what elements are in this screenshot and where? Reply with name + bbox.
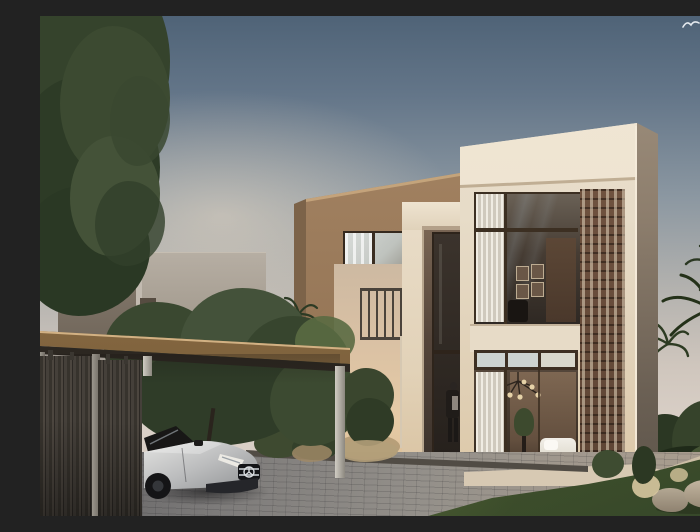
side-mirror bbox=[194, 440, 203, 446]
potted-plant bbox=[514, 408, 534, 436]
picture-frame bbox=[516, 284, 529, 299]
armchair-silhouette bbox=[508, 300, 528, 322]
slat-fence-panel bbox=[98, 360, 142, 516]
picture-frame bbox=[516, 266, 529, 281]
picture-frame bbox=[531, 282, 544, 297]
carport-post bbox=[335, 366, 345, 478]
transom-pane bbox=[541, 353, 575, 367]
person-bag bbox=[452, 396, 458, 410]
bed-pillow bbox=[544, 440, 558, 450]
light-pole bbox=[400, 336, 402, 448]
villa-rendering bbox=[40, 16, 700, 516]
window-transom bbox=[474, 228, 578, 232]
bird-icon bbox=[682, 18, 700, 30]
balcony-railing bbox=[360, 288, 404, 340]
fence-slat bbox=[124, 356, 128, 364]
beam-shadow bbox=[422, 226, 460, 230]
plant-stand bbox=[522, 436, 526, 452]
picture-frame bbox=[531, 264, 544, 279]
carport-post bbox=[143, 356, 152, 376]
person-leg bbox=[448, 418, 452, 442]
silver-sedan bbox=[142, 418, 264, 506]
fence-slat bbox=[70, 352, 74, 360]
upper-interior-wall bbox=[546, 238, 576, 322]
slat-fence-panel bbox=[40, 356, 94, 516]
person-head bbox=[450, 382, 457, 390]
transom-row bbox=[474, 350, 578, 370]
upper-curtain bbox=[476, 194, 505, 322]
person-leg bbox=[454, 418, 458, 442]
door-rail bbox=[432, 350, 463, 354]
mashrabiya-screen bbox=[580, 189, 625, 479]
porch-pier bbox=[402, 202, 424, 482]
fence-slat bbox=[48, 350, 53, 360]
floor-slab-band bbox=[470, 324, 580, 352]
door-reflection bbox=[439, 244, 442, 344]
corner-highlight bbox=[635, 126, 637, 484]
window-mullion bbox=[504, 192, 507, 324]
transom-pane bbox=[477, 353, 505, 367]
fence-slat bbox=[106, 354, 110, 364]
transom-pane bbox=[508, 353, 538, 367]
